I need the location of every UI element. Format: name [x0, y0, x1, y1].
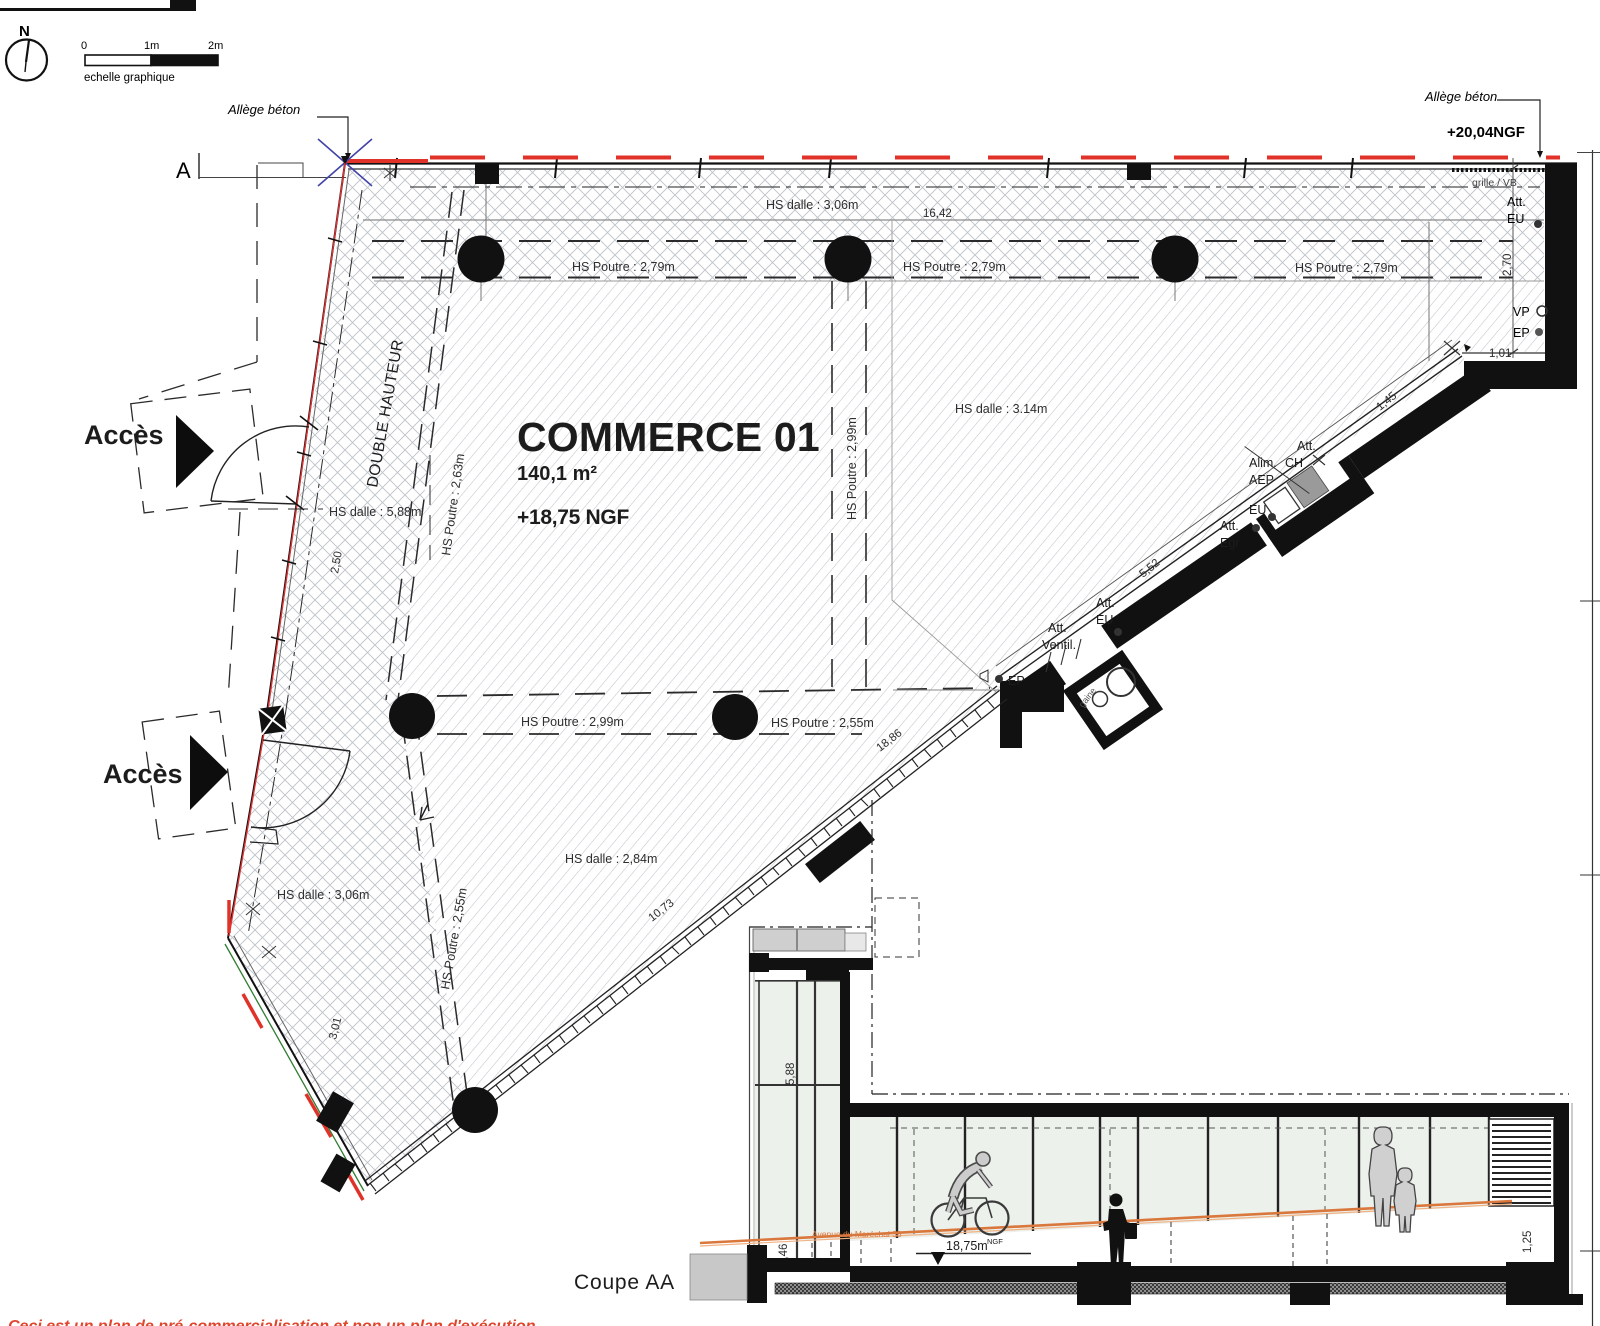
svg-text:HS Poutre : 2,55m: HS Poutre : 2,55m [771, 716, 874, 730]
svg-text:COMMERCE 01: COMMERCE 01 [517, 414, 820, 460]
svg-text:+18,75 NGF: +18,75 NGF [517, 506, 629, 529]
svg-text:0: 0 [81, 40, 87, 52]
svg-text:16,42: 16,42 [923, 208, 952, 220]
svg-text:1,25: 1,25 [1522, 1231, 1534, 1253]
svg-text:Alim.: Alim. [1249, 456, 1277, 470]
svg-text:5,88: 5,88 [785, 1063, 797, 1085]
svg-text:Ceci est un plan de pré-commer: Ceci est un plan de pré-commercialisatio… [8, 1318, 536, 1326]
svg-text:EU: EU [1096, 613, 1113, 627]
svg-text:Allège béton: Allège béton [1424, 89, 1497, 104]
svg-text:2m: 2m [208, 40, 223, 52]
svg-text:HS Poutre : 2,99m: HS Poutre : 2,99m [521, 715, 624, 729]
svg-text:1,01: 1,01 [1489, 348, 1511, 360]
svg-text:Att.: Att. [1297, 439, 1316, 453]
svg-text:Ventil.: Ventil. [1042, 638, 1076, 652]
svg-text:A: A [176, 158, 191, 183]
svg-text:Att.: Att. [1048, 621, 1067, 635]
svg-text:HS dalle : 5,88m: HS dalle : 5,88m [329, 505, 421, 519]
svg-text:HS Poutre : 2,99m: HS Poutre : 2,99m [845, 417, 859, 520]
svg-text:EU: EU [1507, 212, 1524, 226]
svg-text:N: N [19, 23, 30, 40]
svg-text:Att.: Att. [1507, 195, 1526, 209]
svg-text:grille / VB: grille / VB [1472, 177, 1517, 189]
svg-text:Egr: Egr [1220, 536, 1239, 550]
svg-text:echelle graphique: echelle graphique [84, 72, 175, 84]
svg-text:EP: EP [1008, 674, 1025, 688]
svg-text:Att.: Att. [1096, 596, 1115, 610]
svg-text:CH: CH [1285, 456, 1303, 470]
svg-text:EU: EU [1249, 503, 1266, 517]
svg-text:Accès: Accès [103, 759, 183, 789]
svg-text:Att.: Att. [1220, 519, 1239, 533]
svg-text:18,75m: 18,75m [946, 1239, 988, 1253]
svg-text:+20,04NGF: +20,04NGF [1447, 124, 1525, 141]
svg-text:VP: VP [1513, 305, 1530, 319]
svg-text:EP: EP [1513, 326, 1530, 340]
svg-text:NGF: NGF [987, 1237, 1003, 1246]
svg-text:HS dalle : 3,06m: HS dalle : 3,06m [766, 198, 858, 212]
svg-text:140,1 m²: 140,1 m² [517, 463, 597, 485]
svg-text:HS dalle : 3.14m: HS dalle : 3.14m [955, 402, 1047, 416]
svg-text:AEP: AEP [1249, 473, 1274, 487]
svg-text:Accès: Accès [84, 420, 164, 450]
svg-text:HS Poutre : 2,79m: HS Poutre : 2,79m [1295, 261, 1398, 275]
svg-text:HS dalle : 2,84m: HS dalle : 2,84m [565, 852, 657, 866]
svg-text:HS Poutre : 2,79m: HS Poutre : 2,79m [903, 260, 1006, 274]
svg-text:1m: 1m [144, 40, 159, 52]
svg-text:2,70: 2,70 [1502, 254, 1514, 276]
svg-text:HS Poutre : 2,79m: HS Poutre : 2,79m [572, 260, 675, 274]
svg-text:Coupe AA: Coupe AA [574, 1271, 675, 1294]
svg-text:Allège béton: Allège béton [227, 102, 300, 117]
svg-text:HS dalle : 3,06m: HS dalle : 3,06m [277, 888, 369, 902]
svg-text:Avenue du Maréchal 38: Avenue du Maréchal 38 [812, 1229, 902, 1239]
